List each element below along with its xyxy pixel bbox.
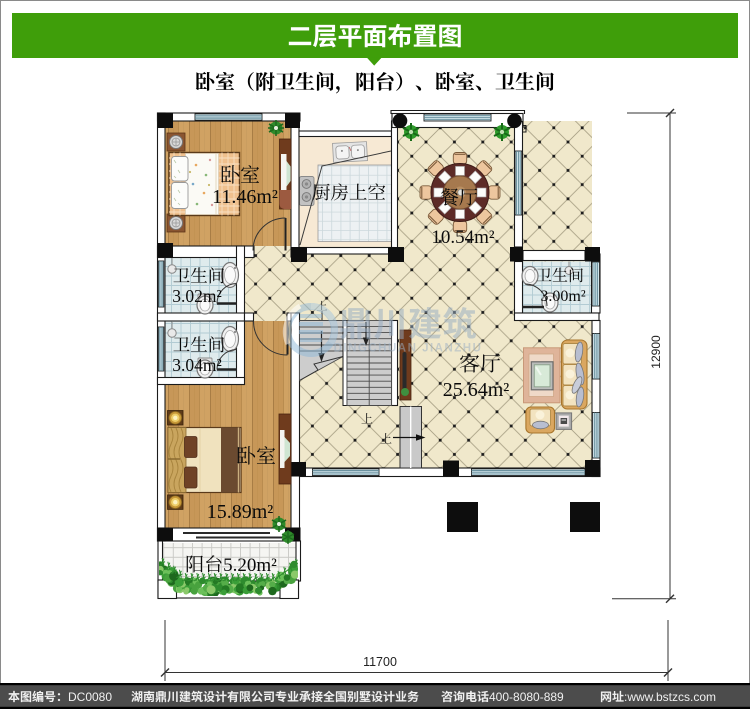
- svg-text:网址:www.bstzcs.com: 网址:www.bstzcs.com: [600, 688, 716, 705]
- svg-text:上: 上: [361, 410, 373, 427]
- svg-text:11.46m²: 11.46m²: [212, 180, 278, 209]
- svg-text:11700: 11700: [363, 655, 397, 669]
- svg-text:二层平面布置图: 二层平面布置图: [287, 17, 462, 53]
- svg-text:湖南鼎川建筑设计有限公司专业承接全国别墅设计业务: 湖南鼎川建筑设计有限公司专业承接全国别墅设计业务: [131, 688, 419, 705]
- svg-text:餐厅: 餐厅: [440, 183, 478, 210]
- svg-text:12900: 12900: [649, 335, 663, 369]
- svg-text:阳台5.20m²: 阳台5.20m²: [185, 550, 277, 577]
- svg-text:鼎川建筑: 鼎川建筑: [339, 297, 477, 346]
- svg-text:3.00m²: 3.00m²: [540, 283, 585, 306]
- svg-text:25.64m²: 25.64m²: [443, 373, 510, 402]
- svg-text:3.04m²: 3.04m²: [172, 352, 221, 377]
- svg-text:上: 上: [380, 430, 392, 447]
- svg-text:卧室: 卧室: [236, 440, 276, 469]
- svg-text:卧室（附卫生间，阳台）、卧室、卫生间: 卧室（附卫生间，阳台）、卧室、卫生间: [195, 66, 555, 95]
- svg-text:15.89m²: 15.89m²: [207, 495, 274, 524]
- svg-text:3.02m²: 3.02m²: [172, 283, 221, 308]
- svg-text:10.54m²: 10.54m²: [431, 222, 495, 249]
- svg-text:咨询电话400-8080-889: 咨询电话400-8080-889: [441, 688, 564, 705]
- svg-text:本图编号：DC0080: 本图编号：DC0080: [8, 688, 112, 705]
- svg-text:厨房上空: 厨房上空: [312, 179, 386, 205]
